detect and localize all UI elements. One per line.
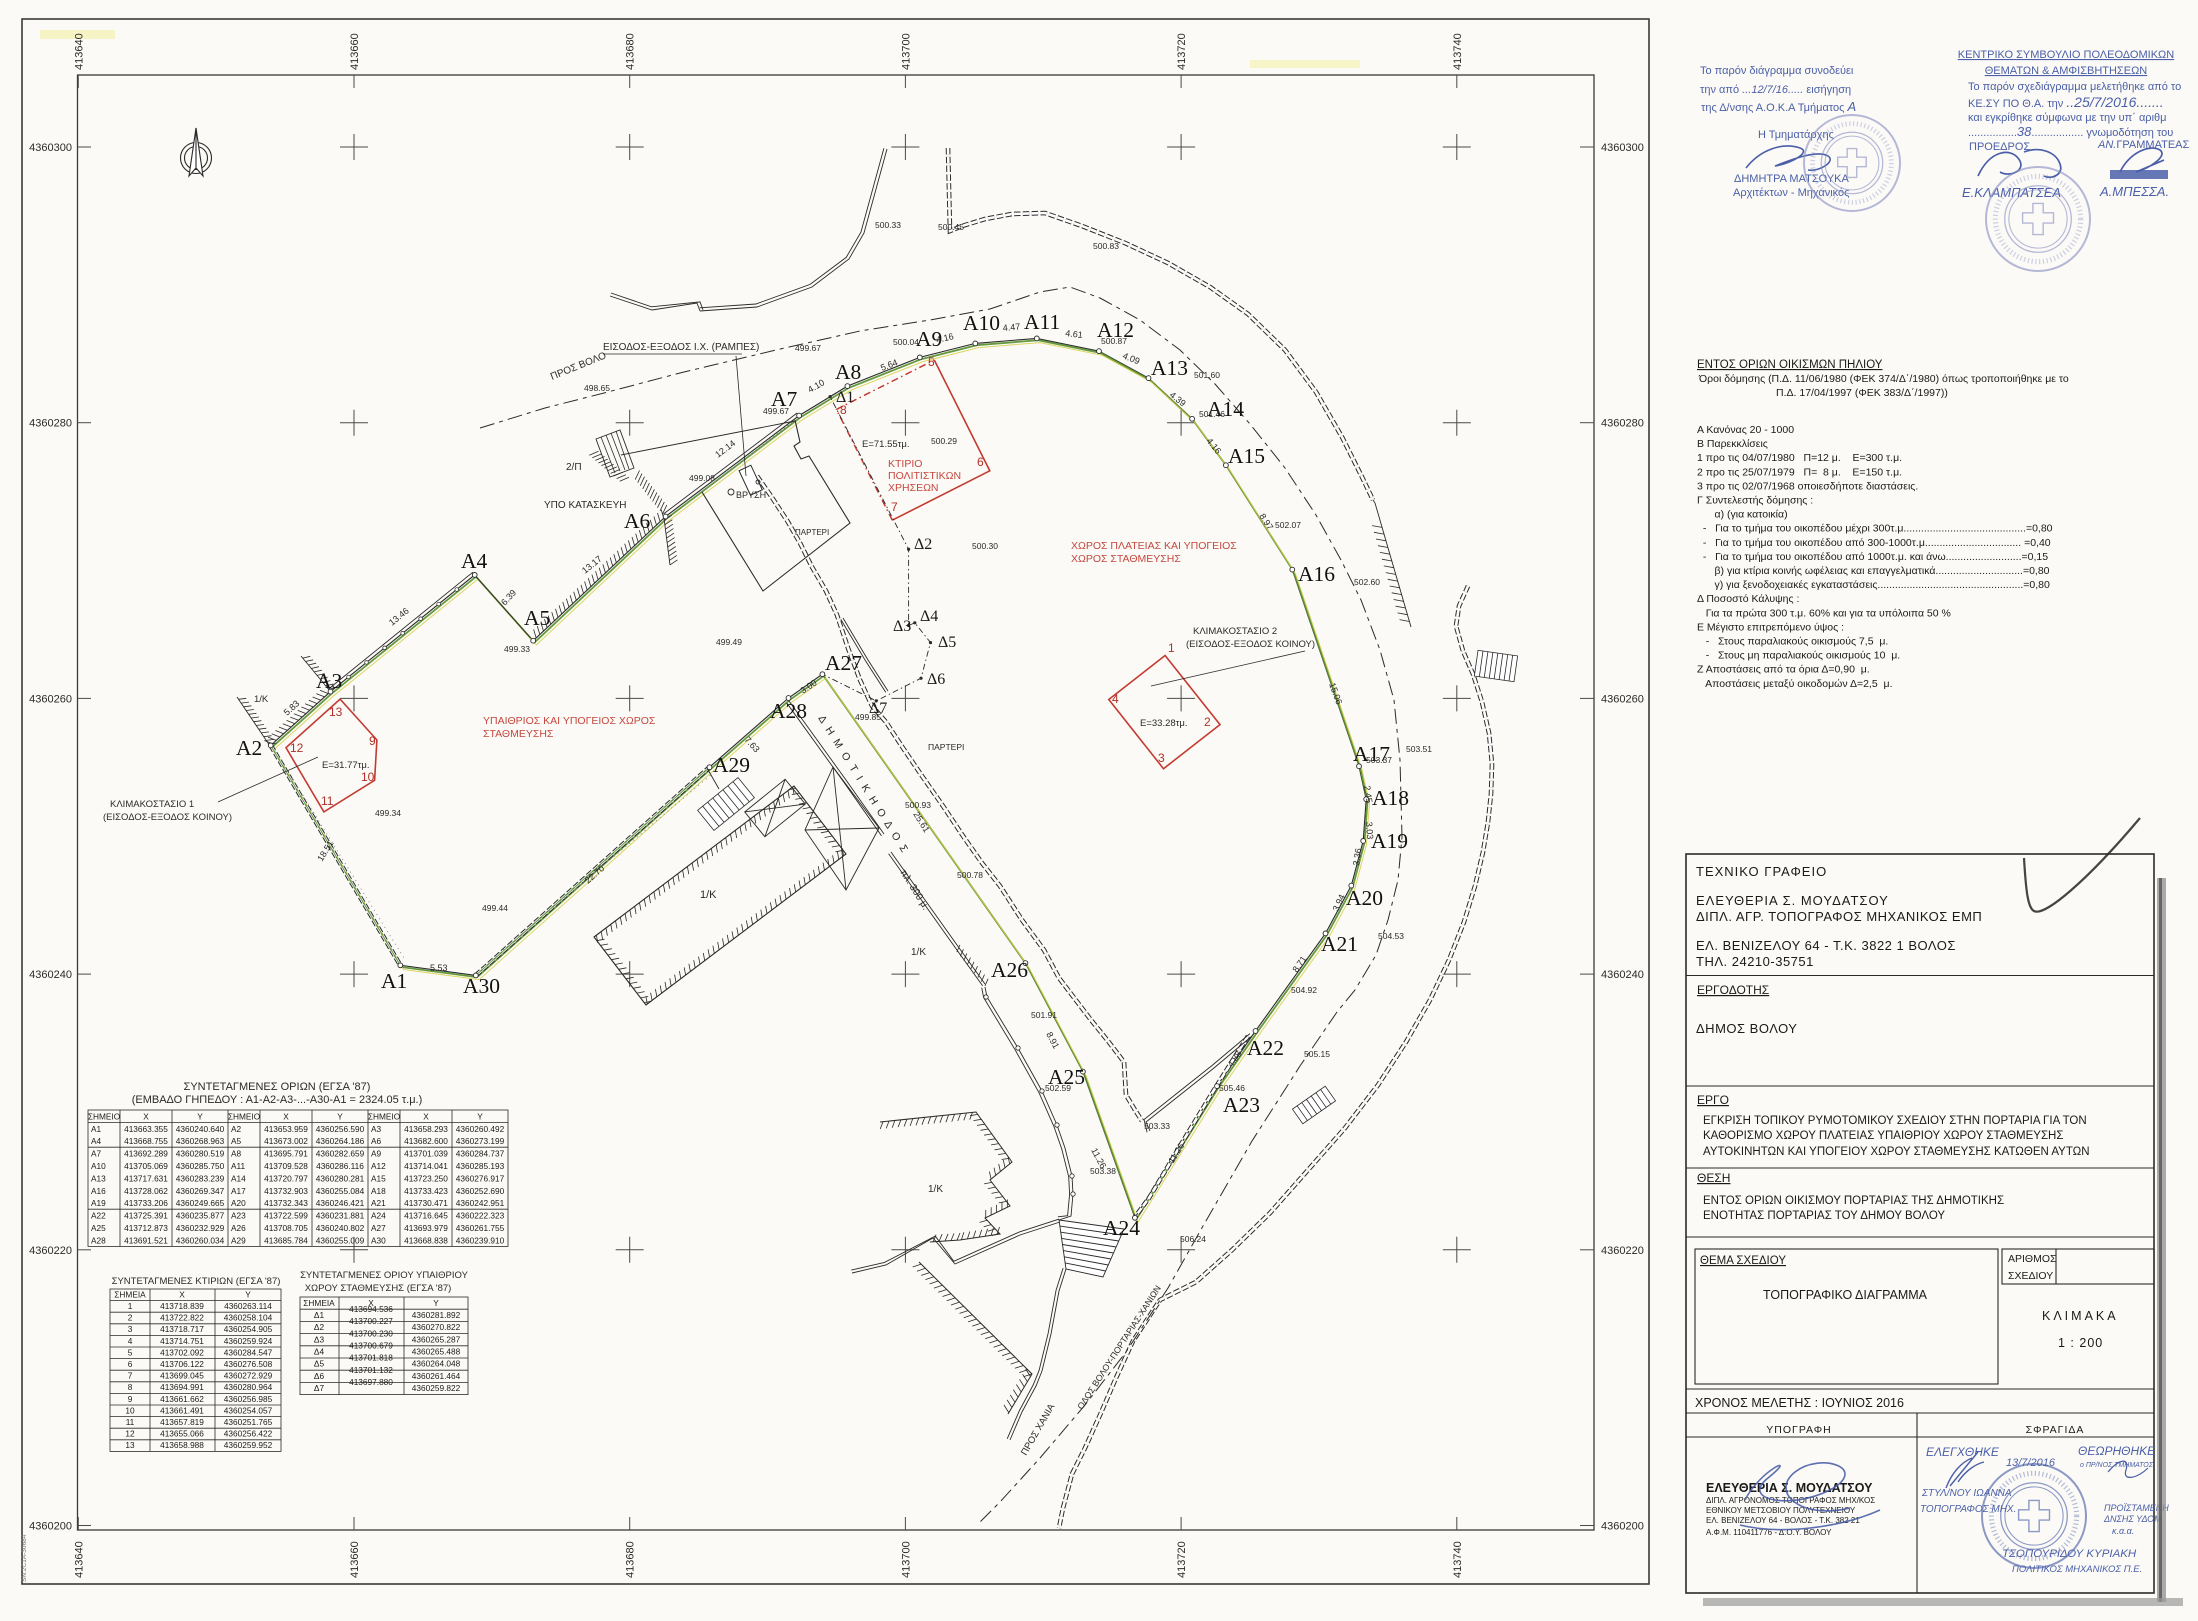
svg-text:4360240: 4360240 <box>1601 969 1644 981</box>
svg-text:ΚΛΙΜΑΚΟΣΤΑΣΙΟ 2: ΚΛΙΜΑΚΟΣΤΑΣΙΟ 2 <box>1193 626 1277 637</box>
svg-text:ΤΟΠΟΓΡΑΦΙΚΟ ΔΙΑΓΡΑΜΜΑ: ΤΟΠΟΓΡΑΦΙΚΟ ΔΙΑΓΡΑΜΜΑ <box>1763 1288 1928 1302</box>
svg-text:Ε=71.55τμ.: Ε=71.55τμ. <box>862 439 910 450</box>
svg-text:ΥΠΟΓΡΑΦΗ: ΥΠΟΓΡΑΦΗ <box>1766 1424 1831 1436</box>
svg-text:4360260: 4360260 <box>1601 693 1644 705</box>
svg-text:506.24: 506.24 <box>1180 1234 1206 1244</box>
svg-text:ΠΟΛΙΤΙΚΟΣ ΜΗΧΑΝΙΚΟΣ Π.Ε.: ΠΟΛΙΤΙΚΟΣ ΜΗΧΑΝΙΚΟΣ Π.Ε. <box>2012 1564 2142 1575</box>
svg-text:Γ Συντελεστής δόμησης :: Γ Συντελεστής δόμησης : <box>1697 495 1813 507</box>
svg-text:503.37: 503.37 <box>1366 755 1392 765</box>
svg-text:4360239.910: 4360239.910 <box>456 1235 505 1245</box>
svg-text:A22: A22 <box>1247 1036 1284 1060</box>
svg-text:499.85: 499.85 <box>855 712 881 722</box>
svg-text:5: 5 <box>928 355 935 369</box>
svg-text:2: 2 <box>128 1313 133 1323</box>
svg-text:413640: 413640 <box>73 33 85 70</box>
svg-text:Ε=31.77τμ.: Ε=31.77τμ. <box>322 760 370 771</box>
svg-text:και εγκρίθηκε σύμφωνα με τ: και εγκρίθηκε σύμφωνα με την υπ΄ αριθμ <box>1968 112 2166 124</box>
svg-text:ΥΠΟ ΚΑΤΑΣΚΕΥΗ: ΥΠΟ ΚΑΤΑΣΚΕΥΗ <box>544 500 627 511</box>
svg-text:ΔΝΣΗΣ ΥΔΟΜ: ΔΝΣΗΣ ΥΔΟΜ <box>2103 1514 2162 1524</box>
svg-text:A14: A14 <box>231 1173 246 1183</box>
svg-text:SN:2C1A-30684: SN:2C1A-30684 <box>21 1534 28 1582</box>
svg-text:ΣΗΜΕΙΑ: ΣΗΜΕΙΑ <box>114 1290 146 1300</box>
svg-text:499.44: 499.44 <box>482 903 508 913</box>
svg-text:499.67: 499.67 <box>763 406 789 416</box>
svg-text:4360200: 4360200 <box>1601 1521 1644 1533</box>
svg-text:502.07: 502.07 <box>1275 520 1301 530</box>
svg-text:Δ5: Δ5 <box>938 634 956 651</box>
svg-text:1 : 200: 1 : 200 <box>2058 1336 2103 1350</box>
svg-text:ΔΗΜΗΤΡΑ ΜΑΤΣΟΥΚΑ: ΔΗΜΗΤΡΑ ΜΑΤΣΟΥΚΑ <box>1734 173 1850 185</box>
svg-text:ΔΙΠΛ. ΑΓΡ. ΤΟΠΟΓΡΑΦΟΣ ΜΗΧΑΝΙΚΟ: ΔΙΠΛ. ΑΓΡ. ΤΟΠΟΓΡΑΦΟΣ ΜΗΧΑΝΙΚΟΣ ΕΜΠ <box>1696 909 1982 924</box>
svg-text:11: 11 <box>126 1417 135 1427</box>
svg-text:499.33: 499.33 <box>504 644 530 654</box>
svg-text:4360276.917: 4360276.917 <box>456 1173 505 1183</box>
svg-text:413722.822: 413722.822 <box>160 1313 204 1323</box>
svg-text:413717.631: 413717.631 <box>124 1173 168 1183</box>
svg-text:Y: Y <box>433 1298 439 1308</box>
svg-text:413655.066: 413655.066 <box>160 1429 204 1439</box>
svg-text:της Δ/νσης Α.Ο.Κ.Α Τμήματος: της Δ/νσης Α.Ο.Κ.Α Τμήματος Α <box>1701 99 1856 114</box>
svg-text:A25: A25 <box>91 1223 106 1233</box>
svg-text:505.46: 505.46 <box>1219 1083 1245 1093</box>
svg-text:13: 13 <box>329 705 343 719</box>
svg-text:Ε Μέγιστο επιτρεπόμενο ύψος :: Ε Μέγιστο επιτρεπόμενο ύψος : <box>1697 621 1844 633</box>
svg-text:A24: A24 <box>1103 1216 1140 1240</box>
svg-text:ΣΦΡΑΓΙΔΑ: ΣΦΡΑΓΙΔΑ <box>2026 1424 2085 1436</box>
svg-text:ΠΟΛΙΤΙΣΤΙΚΩΝ: ΠΟΛΙΤΙΣΤΙΚΩΝ <box>888 470 961 482</box>
svg-text:ΒΡΥΣΗ: ΒΡΥΣΗ <box>736 490 766 500</box>
svg-text:(ΕΙΣΟΔΟΣ-ΕΞΟΔΟΣ ΚΟΙΝΟΥ): (ΕΙΣΟΔΟΣ-ΕΞΟΔΟΣ ΚΟΙΝΟΥ) <box>103 812 232 823</box>
svg-text:12: 12 <box>125 1429 135 1439</box>
svg-text:4360235.877: 4360235.877 <box>176 1211 225 1221</box>
svg-text:ΔΗΜΟΣ ΒΟΛΟΥ: ΔΗΜΟΣ ΒΟΛΟΥ <box>1696 1021 1797 1036</box>
svg-text:3: 3 <box>128 1324 133 1334</box>
svg-text:413695.791: 413695.791 <box>264 1149 308 1159</box>
svg-text:ΘΕΜΑΤΩΝ & ΑΜΦΙΣΒΗΤΗΣΕΩΝ: ΘΕΜΑΤΩΝ & ΑΜΦΙΣΒΗΤΗΣΕΩΝ <box>1985 65 2148 77</box>
svg-text:A26: A26 <box>231 1223 246 1233</box>
svg-text:ΘΕΩΡΗΘΗΚΕ: ΘΕΩΡΗΘΗΚΕ <box>2078 1444 2156 1458</box>
svg-text:ΕΛΕΥΘΕΡΙΑ Σ. ΜΟΥΔΑΤΣΟΥ: ΕΛΕΥΘΕΡΙΑ Σ. ΜΟΥΔΑΤΣΟΥ <box>1696 893 1889 908</box>
svg-text:4360264.186: 4360264.186 <box>316 1136 365 1146</box>
svg-text:Δ5: Δ5 <box>314 1359 325 1369</box>
svg-text:4360220: 4360220 <box>29 1245 72 1257</box>
svg-text:A4: A4 <box>461 549 488 573</box>
svg-text:ΚΛΙΜΑΚΑ: ΚΛΙΜΑΚΑ <box>2042 1309 2119 1323</box>
svg-text:413660: 413660 <box>349 1541 361 1578</box>
svg-text:ΕΝΤΟΣ ΟΡΙΩΝ ΟΙΚΙΣΜΩΝ ΠΗΛΙΟΥ: ΕΝΤΟΣ ΟΡΙΩΝ ΟΙΚΙΣΜΩΝ ΠΗΛΙΟΥ <box>1697 359 1883 371</box>
svg-text:ΧΩΡΟΣ ΠΛΑΤΕΙΑΣ ΚΑΙ ΥΠΟΓΕΙΟΣ: ΧΩΡΟΣ ΠΛΑΤΕΙΑΣ ΚΑΙ ΥΠΟΓΕΙΟΣ <box>1071 540 1237 552</box>
svg-text:500.87: 500.87 <box>1101 336 1127 346</box>
svg-text:ΚΕΝΤΡΙΚΟ ΣΥΜΒΟΥΛΙΟ ΠΟΛΕΟΔΟΜΙ: ΚΕΝΤΡΙΚΟ ΣΥΜΒΟΥΛΙΟ ΠΟΛΕΟΔΟΜΙΚΩΝ <box>1958 49 2174 61</box>
svg-text:4360285.193: 4360285.193 <box>456 1161 505 1171</box>
svg-text:413680: 413680 <box>625 33 637 70</box>
svg-text:413708.705: 413708.705 <box>264 1223 308 1233</box>
svg-text:413712.873: 413712.873 <box>124 1223 168 1233</box>
svg-text:499.49: 499.49 <box>716 637 742 647</box>
svg-text:ΣΥΝΤΕΤΑΓΜΕΝΕΣ ΚΤΙΡΙΩΝ (ΕΓΣΑ '8: ΣΥΝΤΕΤΑΓΜΕΝΕΣ ΚΤΙΡΙΩΝ (ΕΓΣΑ '87) <box>112 1276 281 1287</box>
svg-text:ΕΛΕΥΘΕΡΙΑ Σ. ΜΟΥΔΑΤΣΟΥ: ΕΛΕΥΘΕΡΙΑ Σ. ΜΟΥΔΑΤΣΟΥ <box>1706 1481 1873 1495</box>
svg-text:A20: A20 <box>1346 886 1383 910</box>
svg-text:A19: A19 <box>1371 829 1408 853</box>
svg-text:Δ4: Δ4 <box>314 1347 325 1357</box>
svg-text:4360255.009: 4360255.009 <box>316 1235 365 1245</box>
svg-text:ΠΑΡΤΕΡΙ: ΠΑΡΤΕΡΙ <box>795 528 829 537</box>
svg-text:Ζ Αποστάσεις από τα όρια Δ=0,9: Ζ Αποστάσεις από τα όρια Δ=0,90 μ. <box>1697 664 1870 676</box>
svg-text:Το παρόν διάγραμμα συνοδεύε: Το παρόν διάγραμμα συνοδεύει <box>1700 65 1854 77</box>
svg-text:1 προ τις 04/07/1980 Π=12 μ.: 1 προ τις 04/07/1980 Π=12 μ. Ε=300 τ.μ. <box>1697 452 1902 464</box>
svg-text:4360220: 4360220 <box>1601 1245 1644 1257</box>
svg-text:ΣΗΜΕΙΑ: ΣΗΜΕΙΑ <box>303 1298 335 1308</box>
svg-text:4360265.488: 4360265.488 <box>412 1347 461 1357</box>
svg-text:413661.662: 413661.662 <box>160 1394 204 1404</box>
svg-text:4360264.048: 4360264.048 <box>412 1359 461 1369</box>
svg-text:413701.132: 413701.132 <box>349 1365 393 1375</box>
svg-text:A13: A13 <box>91 1173 106 1183</box>
svg-text:Το παρόν σχεδιάγραμμα μελετ: Το παρόν σχεδιάγραμμα μελετήθηκε από το <box>1968 81 2181 93</box>
svg-text:Αποστάσεις μεταξύ οικοδομών Δ=: Αποστάσεις μεταξύ οικοδομών Δ=2,5 μ. <box>1697 678 1893 690</box>
svg-text:A21: A21 <box>1321 932 1358 956</box>
svg-text:Δ1: Δ1 <box>836 389 854 406</box>
svg-text:503.33: 503.33 <box>1144 1121 1170 1131</box>
svg-text:A4: A4 <box>91 1136 102 1146</box>
svg-text:4360254.905: 4360254.905 <box>224 1324 273 1334</box>
svg-text:A23: A23 <box>231 1211 246 1221</box>
svg-text:1: 1 <box>128 1301 133 1311</box>
svg-text:413714.041: 413714.041 <box>404 1161 448 1171</box>
svg-text:6: 6 <box>977 455 984 469</box>
svg-text:413692.289: 413692.289 <box>124 1149 168 1159</box>
svg-text:10: 10 <box>125 1405 135 1415</box>
svg-text:1/Κ: 1/Κ <box>928 1184 943 1195</box>
svg-text:4360240.802: 4360240.802 <box>316 1223 365 1233</box>
svg-text:4360284.547: 4360284.547 <box>224 1347 273 1357</box>
svg-text:A17: A17 <box>231 1186 246 1196</box>
svg-text:ΕΙΣΟΔΟΣ-ΕΞΟΔΟΣ Ι.Χ. (ΡΑΜΠΕΣ): ΕΙΣΟΔΟΣ-ΕΞΟΔΟΣ Ι.Χ. (ΡΑΜΠΕΣ) <box>603 342 759 353</box>
svg-text:................38............: ................38................. γνωμ… <box>1968 124 2173 139</box>
svg-text:413673.002: 413673.002 <box>264 1136 308 1146</box>
svg-text:413697.880: 413697.880 <box>349 1377 393 1387</box>
svg-text:Y: Y <box>477 1111 483 1121</box>
svg-text:γ) για ξενοδοχειακές εγκαταστά: γ) για ξενοδοχειακές εγκαταστάσεις......… <box>1697 579 2050 591</box>
svg-text:4360280.519: 4360280.519 <box>176 1149 225 1159</box>
svg-text:504.53: 504.53 <box>1378 931 1404 941</box>
svg-text:4360256.985: 4360256.985 <box>224 1394 273 1404</box>
svg-text:413728.062: 413728.062 <box>124 1186 168 1196</box>
svg-text:- Για το τμήμα του οικοπέδου: - Για το τμήμα του οικοπέδου μέχρι 300τ.… <box>1697 523 2053 535</box>
svg-text:4360255.084: 4360255.084 <box>316 1186 365 1196</box>
svg-text:2: 2 <box>1204 715 1211 729</box>
svg-text:4360280.964: 4360280.964 <box>224 1382 273 1392</box>
svg-text:3 προ τις 02/07/1968 οποιεσδήπ: 3 προ τις 02/07/1968 οποιεσδήποτε διαστά… <box>1697 480 1918 492</box>
svg-text:Η Τμηματάρχης: Η Τμηματάρχης <box>1758 129 1834 141</box>
svg-text:413663.355: 413663.355 <box>124 1124 168 1134</box>
svg-text:503.38: 503.38 <box>1090 1166 1116 1176</box>
svg-text:A3: A3 <box>316 669 342 693</box>
svg-text:4360272.929: 4360272.929 <box>224 1371 273 1381</box>
svg-text:α) (για κατοικία): α) (για κατοικία) <box>1697 509 1788 521</box>
svg-text:Δ3: Δ3 <box>314 1334 325 1344</box>
svg-text:413718.717: 413718.717 <box>160 1324 204 1334</box>
svg-text:Αρχιτέκτων - Μηχανικός: Αρχιτέκτων - Μηχανικός <box>1733 187 1849 199</box>
svg-text:A5: A5 <box>231 1136 242 1146</box>
svg-text:ΕΛ. ΒΕΝΙΖΕΛΟΥ 64 - Τ.Κ. 3822 1: ΕΛ. ΒΕΝΙΖΕΛΟΥ 64 - Τ.Κ. 3822 1 ΒΟΛΟΣ <box>1696 938 1956 953</box>
svg-text:413702.092: 413702.092 <box>160 1347 204 1357</box>
svg-text:413733.206: 413733.206 <box>124 1198 168 1208</box>
svg-text:413705.069: 413705.069 <box>124 1161 168 1171</box>
svg-text:A9: A9 <box>371 1149 382 1159</box>
svg-text:413706.122: 413706.122 <box>160 1359 204 1369</box>
svg-text:4360240.640: 4360240.640 <box>176 1124 225 1134</box>
svg-text:την από ...12/7/16..... εισήγ: την από ...12/7/16..... εισήγηση <box>1700 84 1851 96</box>
svg-text:2 προ τις 25/07/1979 Π= 8 μ: 2 προ τις 25/07/1979 Π= 8 μ. Ε=150 τ.μ. <box>1697 466 1902 478</box>
svg-text:ΣΤΑΘΜΕΥΣΗΣ: ΣΤΑΘΜΕΥΣΗΣ <box>483 728 554 740</box>
svg-text:A16: A16 <box>91 1186 106 1196</box>
svg-text:502.60: 502.60 <box>1354 577 1380 587</box>
svg-text:4360254.057: 4360254.057 <box>224 1405 273 1415</box>
svg-text:413694.991: 413694.991 <box>160 1382 204 1392</box>
svg-text:499.67: 499.67 <box>795 343 821 353</box>
svg-text:ΑΡΙΘΜΟΣ: ΑΡΙΘΜΟΣ <box>2008 1253 2057 1265</box>
svg-text:Y: Y <box>337 1111 343 1121</box>
svg-text:501.46: 501.46 <box>1199 409 1225 419</box>
svg-text:4360269.347: 4360269.347 <box>176 1186 225 1196</box>
svg-text:Όροι δόμησης (Π.Δ. 11/06/1980: Όροι δόμησης (Π.Δ. 11/06/1980 (ΦΕΚ 374/Δ… <box>1698 373 2069 385</box>
svg-text:413725.391: 413725.391 <box>124 1211 168 1221</box>
svg-text:A30: A30 <box>371 1235 386 1245</box>
svg-text:498.65: 498.65 <box>584 383 610 393</box>
svg-text:Δ7: Δ7 <box>314 1383 325 1393</box>
svg-text:413658.293: 413658.293 <box>404 1124 448 1134</box>
svg-text:ΧΡΟΝΟΣ ΜΕΛΕΤΗΣ : ΙΟΥΝΙΟΣ 2016: ΧΡΟΝΟΣ ΜΕΛΕΤΗΣ : ΙΟΥΝΙΟΣ 2016 <box>1695 1396 1904 1410</box>
svg-text:Δ6: Δ6 <box>927 671 945 688</box>
svg-text:ΣΗΜΕΙΟ: ΣΗΜΕΙΟ <box>228 1111 261 1121</box>
svg-text:4360249.665: 4360249.665 <box>176 1198 225 1208</box>
svg-text:413661.491: 413661.491 <box>160 1405 204 1415</box>
svg-text:A27: A27 <box>371 1223 386 1233</box>
svg-text:4360284.737: 4360284.737 <box>456 1149 505 1159</box>
svg-text:ΕΛΕΓΧΘΗΚΕ: ΕΛΕΓΧΘΗΚΕ <box>1926 1445 2000 1459</box>
svg-text:4360270.822: 4360270.822 <box>412 1322 461 1332</box>
svg-text:Δ2: Δ2 <box>914 536 932 553</box>
svg-text:A21: A21 <box>371 1198 386 1208</box>
svg-text:4360231.881: 4360231.881 <box>316 1211 365 1221</box>
svg-text:4360276.508: 4360276.508 <box>224 1359 273 1369</box>
svg-text:413682.600: 413682.600 <box>404 1136 448 1146</box>
svg-text:A6: A6 <box>624 509 651 533</box>
svg-text:500.33: 500.33 <box>875 220 901 230</box>
svg-text:ΕΓΚΡΙΣΗ ΤΟΠΙΚΟΥ ΡΥΜΟΤΟΜΙΚΟΥ ΣΧ: ΕΓΚΡΙΣΗ ΤΟΠΙΚΟΥ ΡΥΜΟΤΟΜΙΚΟΥ ΣΧΕΔΙΟΥ ΣΤΗΝ… <box>1703 1115 2087 1127</box>
svg-text:413668.755: 413668.755 <box>124 1136 168 1146</box>
svg-text:A20: A20 <box>231 1198 246 1208</box>
svg-text:413680: 413680 <box>625 1541 637 1578</box>
svg-text:4360300: 4360300 <box>29 142 72 154</box>
svg-text:(ΕΜΒΑΔΟ ΓΗΠΕΔΟΥ : Α1-Α2-Α3-...: (ΕΜΒΑΔΟ ΓΗΠΕΔΟΥ : Α1-Α2-Α3-...-Α30-Α1 = … <box>132 1094 423 1106</box>
svg-text:X: X <box>283 1111 289 1121</box>
svg-text:501.60: 501.60 <box>1194 370 1220 380</box>
svg-text:500.04: 500.04 <box>893 337 919 347</box>
svg-text:ΚΛΙΜΑΚΟΣΤΑΣΙΟ 1: ΚΛΙΜΑΚΟΣΤΑΣΙΟ 1 <box>110 799 194 810</box>
svg-text:502.59: 502.59 <box>1045 1083 1071 1093</box>
svg-text:A8: A8 <box>231 1149 242 1159</box>
svg-text:ΧΩΡΟΣ ΣΤΑΘΜΕΥΣΗΣ: ΧΩΡΟΣ ΣΤΑΘΜΕΥΣΗΣ <box>1071 553 1181 565</box>
svg-text:ΧΡΗΣΕΩΝ: ΧΡΗΣΕΩΝ <box>888 482 939 494</box>
svg-text:413722.599: 413722.599 <box>264 1211 308 1221</box>
svg-text:ΕΝΟΤΗΤΑΣ ΠΟΡΤΑΡΙΑΣ ΤΟΥ ΔΗΜΟΥ Β: ΕΝΟΤΗΤΑΣ ΠΟΡΤΑΡΙΑΣ ΤΟΥ ΔΗΜΟΥ ΒΟΛΟΥ <box>1703 1210 1945 1222</box>
svg-text:4360240: 4360240 <box>29 969 72 981</box>
svg-text:A18: A18 <box>371 1186 386 1196</box>
svg-text:A22: A22 <box>91 1211 106 1221</box>
svg-text:ΣΥΝΤΕΤΑΓΜΕΝΕΣ ΟΡΙΩΝ (ΕΓΣΑ '87): ΣΥΝΤΕΤΑΓΜΕΝΕΣ ΟΡΙΩΝ (ΕΓΣΑ '87) <box>184 1081 371 1093</box>
svg-text:413716.645: 413716.645 <box>404 1211 448 1221</box>
svg-text:4360300: 4360300 <box>1601 142 1644 154</box>
svg-text:Δ1: Δ1 <box>314 1310 325 1320</box>
svg-text:11: 11 <box>321 794 334 808</box>
svg-text:4360282.659: 4360282.659 <box>316 1149 365 1159</box>
svg-text:4360265.287: 4360265.287 <box>412 1334 461 1344</box>
svg-text:500.45: 500.45 <box>938 222 964 232</box>
svg-text:4360259.952: 4360259.952 <box>224 1440 273 1450</box>
svg-text:A28: A28 <box>770 699 807 723</box>
svg-text:12: 12 <box>290 741 304 755</box>
svg-text:5: 5 <box>128 1347 133 1357</box>
svg-text:A13: A13 <box>1151 356 1188 380</box>
svg-text:ΕΡΓΟΔΟΤΗΣ: ΕΡΓΟΔΟΤΗΣ <box>1697 983 1769 997</box>
svg-text:413657.819: 413657.819 <box>160 1417 204 1427</box>
svg-text:9: 9 <box>128 1394 133 1404</box>
svg-text:413700.230: 413700.230 <box>349 1328 393 1338</box>
svg-text:7: 7 <box>128 1371 133 1381</box>
svg-text:κ.α.α.: κ.α.α. <box>2112 1526 2134 1536</box>
svg-text:4: 4 <box>128 1336 133 1346</box>
svg-text:505.15: 505.15 <box>1304 1049 1330 1059</box>
svg-text:413740: 413740 <box>1452 1541 1464 1578</box>
svg-text:413740: 413740 <box>1452 33 1464 70</box>
svg-text:Β Παρεκκλίσεις: Β Παρεκκλίσεις <box>1697 438 1768 450</box>
svg-text:A5: A5 <box>524 606 550 630</box>
svg-text:4360252.690: 4360252.690 <box>456 1186 505 1196</box>
svg-text:A15: A15 <box>371 1173 386 1183</box>
svg-text:413720: 413720 <box>1176 33 1188 70</box>
svg-text:4360232.929: 4360232.929 <box>176 1223 225 1233</box>
svg-text:Α Κανόνας 20 - 1000: Α Κανόνας 20 - 1000 <box>1697 424 1794 436</box>
svg-text:Δ Ποσοστό Κάλυψης :: Δ Ποσοστό Κάλυψης : <box>1697 593 1799 605</box>
svg-text:413668.838: 413668.838 <box>404 1235 448 1245</box>
svg-text:413709.528: 413709.528 <box>264 1161 308 1171</box>
svg-text:A29: A29 <box>713 753 750 777</box>
svg-text:1/Κ: 1/Κ <box>700 889 717 901</box>
svg-text:A30: A30 <box>463 974 500 998</box>
svg-text:503.51: 503.51 <box>1406 744 1432 754</box>
svg-text:ΧΩΡΟΥ ΣΤΑΘΜΕΥΣΗΣ (ΕΓΣΑ '87): ΧΩΡΟΥ ΣΤΑΘΜΕΥΣΗΣ (ΕΓΣΑ '87) <box>305 1283 452 1294</box>
svg-text:X: X <box>179 1290 185 1300</box>
svg-text:Y: Y <box>197 1111 203 1121</box>
svg-text:ΣΥΝΤΕΤΑΓΜΕΝΕΣ ΟΡΙΟΥ ΥΠΑΙΘΡΙΟ: ΣΥΝΤΕΤΑΓΜΕΝΕΣ ΟΡΙΟΥ ΥΠΑΙΘΡΙΟΥ <box>300 1270 469 1281</box>
svg-text:413660: 413660 <box>349 33 361 70</box>
svg-text:504.92: 504.92 <box>1291 985 1317 995</box>
svg-text:4360256.422: 4360256.422 <box>224 1429 273 1439</box>
svg-text:- Για το τμήμα του οικοπέδου: - Για το τμήμα του οικοπέδου από 300-100… <box>1697 537 2051 549</box>
svg-text:413718.839: 413718.839 <box>160 1301 204 1311</box>
svg-text:413720: 413720 <box>1176 1541 1188 1578</box>
svg-text:(ΕΙΣΟΔΟΣ-ΕΞΟΔΟΣ ΚΟΙΝΟΥ): (ΕΙΣΟΔΟΣ-ΕΞΟΔΟΣ ΚΟΙΝΟΥ) <box>1186 639 1315 650</box>
svg-text:4360261.755: 4360261.755 <box>456 1223 505 1233</box>
svg-text:A23: A23 <box>1223 1093 1260 1117</box>
svg-text:413701.039: 413701.039 <box>404 1149 448 1159</box>
svg-text:4360260.492: 4360260.492 <box>456 1124 505 1134</box>
svg-text:A10: A10 <box>963 311 1000 335</box>
svg-text:4360268.963: 4360268.963 <box>176 1136 225 1146</box>
svg-text:A11: A11 <box>1024 310 1060 334</box>
svg-text:413723.250: 413723.250 <box>404 1173 448 1183</box>
svg-text:Δ4: Δ4 <box>920 608 938 625</box>
svg-text:X: X <box>143 1111 149 1121</box>
svg-text:- Στους μη παραλιακούς οικισ: - Στους μη παραλιακούς οικισμούς 10 μ. <box>1697 650 1900 662</box>
svg-text:4360280: 4360280 <box>29 418 72 430</box>
svg-text:413640: 413640 <box>73 1541 85 1578</box>
svg-text:3: 3 <box>1158 751 1165 765</box>
svg-text:- Στους παραλιακούς οικισμού: - Στους παραλιακούς οικισμούς 7,5 μ. <box>1697 636 1888 648</box>
svg-text:ΕΝΤΟΣ ΟΡΙΩΝ ΟΙΚΙΣΜΟΥ ΠΟΡΤΑΡΙΑΣ: ΕΝΤΟΣ ΟΡΙΩΝ ΟΙΚΙΣΜΟΥ ΠΟΡΤΑΡΙΑΣ ΤΗΣ ΔΗΜΟΤ… <box>1703 1195 2004 1207</box>
svg-text:A6: A6 <box>371 1136 382 1146</box>
svg-text:13: 13 <box>125 1440 135 1450</box>
svg-text:4360259.924: 4360259.924 <box>224 1336 273 1346</box>
svg-text:4360251.765: 4360251.765 <box>224 1417 273 1427</box>
svg-text:ΠΑΡΤΕΡΙ: ΠΑΡΤΕΡΙ <box>928 742 964 752</box>
svg-text:Ε=33.28τμ.: Ε=33.28τμ. <box>1140 718 1188 729</box>
svg-text:413733.423: 413733.423 <box>404 1186 448 1196</box>
svg-text:5.53: 5.53 <box>430 963 448 973</box>
svg-text:4.47: 4.47 <box>1002 322 1020 333</box>
svg-text:2/Π: 2/Π <box>566 462 582 473</box>
svg-text:A1: A1 <box>381 969 407 993</box>
svg-text:4360258.104: 4360258.104 <box>224 1313 273 1323</box>
svg-text:A3: A3 <box>371 1124 382 1134</box>
svg-text:ΣΗΜΕΙΟ: ΣΗΜΕΙΟ <box>368 1111 401 1121</box>
svg-text:413732.903: 413732.903 <box>264 1186 308 1196</box>
svg-text:413653.959: 413653.959 <box>264 1124 308 1134</box>
svg-text:4360260: 4360260 <box>29 693 72 705</box>
svg-text:4360222.323: 4360222.323 <box>456 1211 505 1221</box>
svg-text:ΥΠΑΙΘΡΙΟΣ ΚΑΙ ΥΠΟΓΕΙΟΣ ΧΩΡΟΣ: ΥΠΑΙΘΡΙΟΣ ΚΑΙ ΥΠΟΓΕΙΟΣ ΧΩΡΟΣ <box>483 715 656 727</box>
svg-text:A2: A2 <box>231 1124 242 1134</box>
svg-text:4360260.034: 4360260.034 <box>176 1235 225 1245</box>
svg-text:A10: A10 <box>91 1161 106 1171</box>
svg-text:4360200: 4360200 <box>29 1521 72 1533</box>
svg-text:9: 9 <box>369 734 376 748</box>
svg-text:4360280.281: 4360280.281 <box>316 1173 365 1183</box>
svg-text:A12: A12 <box>371 1161 386 1171</box>
svg-text:413700.679: 413700.679 <box>349 1341 393 1351</box>
svg-text:413699.045: 413699.045 <box>160 1371 204 1381</box>
svg-text:ΑΥΤΟΚΙΝΗΤΩΝ ΚΑΙ ΥΠΟΓΕΙΟΥ ΧΩΡΟΥ: ΑΥΤΟΚΙΝΗΤΩΝ ΚΑΙ ΥΠΟΓΕΙΟΥ ΧΩΡΟΥ ΣΤΑΘΜΕΥΣΗ… <box>1703 1146 2090 1158</box>
svg-text:413693.979: 413693.979 <box>404 1223 448 1233</box>
svg-text:10: 10 <box>361 770 375 784</box>
svg-text:A2: A2 <box>236 736 262 760</box>
svg-text:A15: A15 <box>1228 444 1265 468</box>
svg-text:A1: A1 <box>91 1124 102 1134</box>
svg-text:4360273.199: 4360273.199 <box>456 1136 505 1146</box>
svg-text:413658.988: 413658.988 <box>160 1440 204 1450</box>
svg-text:4360285.750: 4360285.750 <box>176 1161 225 1171</box>
svg-text:413730.471: 413730.471 <box>404 1198 448 1208</box>
svg-text:501.91: 501.91 <box>1031 1010 1057 1020</box>
svg-text:ΤΕΧΝΙΚΟ ΓΡΑΦΕΙΟ: ΤΕΧΝΙΚΟ ΓΡΑΦΕΙΟ <box>1696 864 1827 879</box>
svg-text:413720.797: 413720.797 <box>264 1173 308 1183</box>
svg-text:ΠΡΟΕΔΡΟΣ: ΠΡΟΕΔΡΟΣ <box>1969 141 2030 153</box>
svg-text:A11: A11 <box>231 1161 246 1171</box>
svg-text:4360242.951: 4360242.951 <box>456 1198 505 1208</box>
svg-text:500.93: 500.93 <box>905 800 931 810</box>
